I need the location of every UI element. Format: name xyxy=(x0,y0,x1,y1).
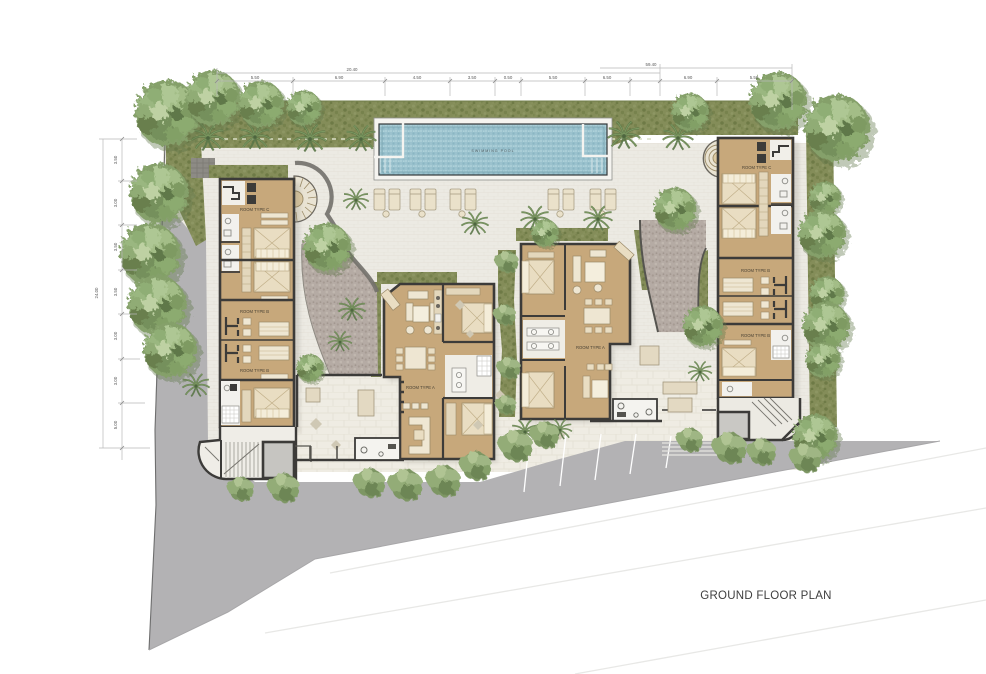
svg-text:3.50: 3.50 xyxy=(113,242,118,251)
svg-text:20.40: 20.40 xyxy=(347,67,359,72)
svg-text:3.00: 3.00 xyxy=(113,331,118,340)
svg-text:24.00: 24.00 xyxy=(94,287,99,299)
svg-text:3.00: 3.00 xyxy=(113,376,118,385)
svg-text:4.50: 4.50 xyxy=(413,75,422,80)
svg-text:3.50: 3.50 xyxy=(113,155,118,164)
svg-text:GROUND FLOOR PLAN: GROUND FLOOR PLAN xyxy=(700,590,831,602)
svg-text:ROOM TYPE C: ROOM TYPE C xyxy=(742,165,771,170)
svg-text:6.90: 6.90 xyxy=(335,75,344,80)
svg-text:ROOM TYPE A: ROOM TYPE A xyxy=(406,385,435,390)
svg-text:ROOM TYPE A: ROOM TYPE A xyxy=(576,345,605,350)
svg-text:6.90: 6.90 xyxy=(684,75,693,80)
svg-text:ROOM TYPE B: ROOM TYPE B xyxy=(240,368,269,373)
svg-text:ROOM TYPE B: ROOM TYPE B xyxy=(741,333,770,338)
svg-text:3.00: 3.00 xyxy=(113,198,118,207)
svg-text:3.50: 3.50 xyxy=(468,75,477,80)
svg-text:ROOM TYPE B: ROOM TYPE B xyxy=(240,309,269,314)
svg-text:59.40: 59.40 xyxy=(646,62,658,67)
svg-text:SWIMMING POOL: SWIMMING POOL xyxy=(471,149,514,153)
svg-text:5.00: 5.00 xyxy=(113,420,118,429)
svg-text:ROOM TYPE C: ROOM TYPE C xyxy=(240,207,269,212)
svg-text:6.50: 6.50 xyxy=(603,75,612,80)
svg-text:5.50: 5.50 xyxy=(549,75,558,80)
svg-text:0.50: 0.50 xyxy=(504,75,513,80)
svg-text:3.50: 3.50 xyxy=(113,287,118,296)
svg-text:5.50: 5.50 xyxy=(750,75,759,80)
svg-text:ROOM TYPE B: ROOM TYPE B xyxy=(741,268,770,273)
svg-text:5.50: 5.50 xyxy=(251,75,260,80)
